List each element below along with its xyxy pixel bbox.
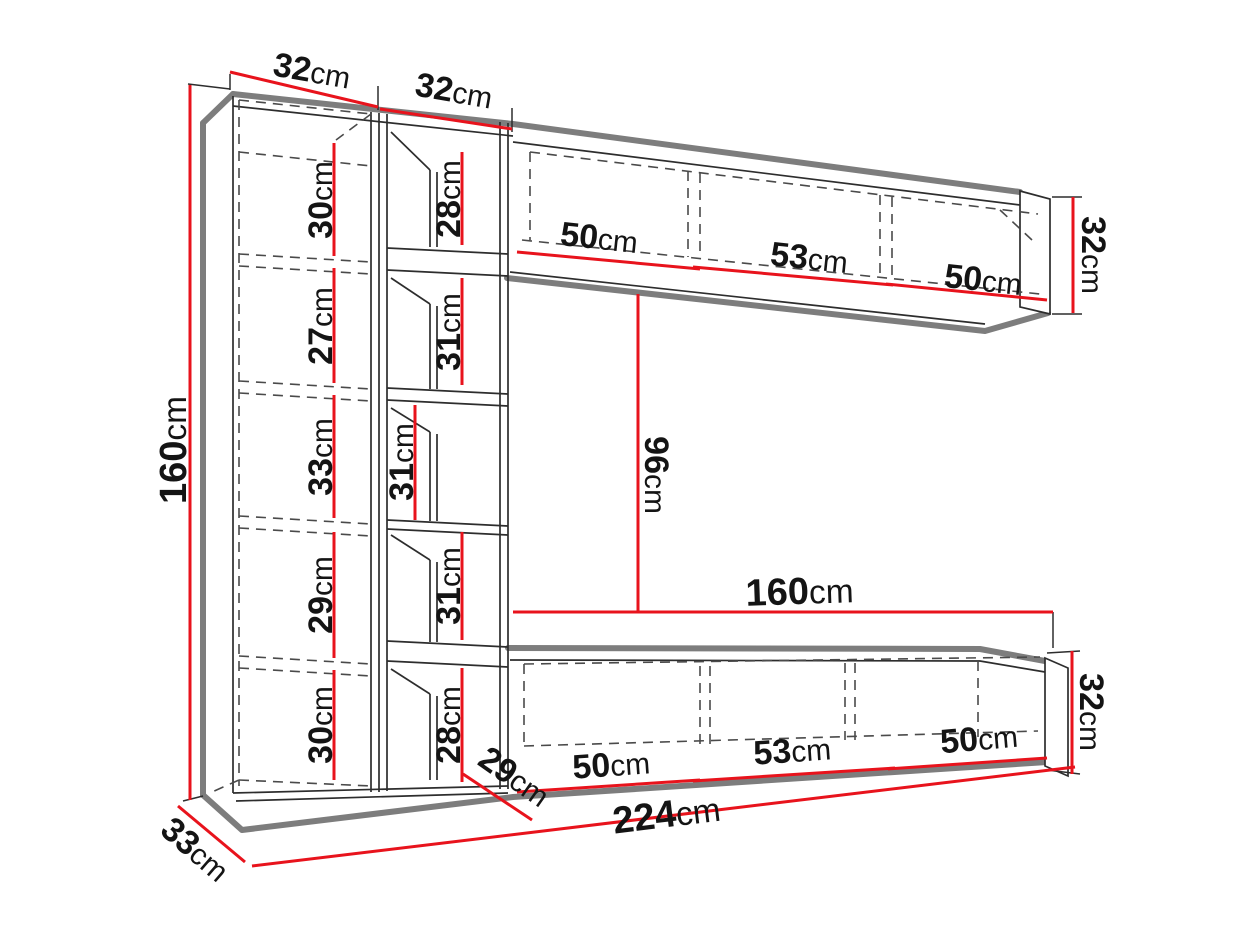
dim-label-tv-w3: 50cm (939, 717, 1020, 762)
dim-label-tv-w1: 50cm (571, 743, 651, 786)
furniture-dimension-diagram: 32cm 32cm 160cm 30cm 27cm 33cm 29cm 30cm… (0, 0, 1240, 930)
dim-label-col-inner-s2: 31cm (430, 293, 468, 371)
diagram-canvas: 32cm 32cm 160cm 30cm 27cm 33cm 29cm 30cm… (0, 0, 1240, 930)
dim-label-col-left-s5: 30cm (302, 686, 340, 764)
dim-label-top-cabinet-w3: 50cm (943, 257, 1024, 303)
dim-label-col-left-s1: 30cm (302, 161, 340, 239)
dim-label-top-cabinet-w1: 50cm (559, 215, 640, 261)
dim-label-col-left-s3: 33cm (302, 418, 340, 496)
tv-stand-right-panel (1045, 658, 1068, 776)
dim-label-top-cabinet-height: 32cm (1074, 216, 1112, 294)
dim-label-tv-w2: 53cm (752, 729, 832, 772)
dim-label-col-left-s4: 29cm (302, 556, 340, 634)
dim-label-col-left-width: 32cm (270, 46, 353, 97)
dim-label-total-width: 224cm (610, 788, 722, 843)
dim-label-tv-length: 160cm (745, 569, 854, 615)
dim-label-top-cabinet-w2: 53cm (769, 235, 850, 281)
dim-label-col-left-s2: 27cm (302, 287, 340, 365)
dim-label-col-inner-s1: 28cm (430, 160, 468, 238)
dim-label-col-inner-s4: 31cm (430, 547, 468, 625)
dim-label-niche-height: 96cm (637, 436, 675, 514)
dim-label-col-inner-width: 32cm (412, 66, 495, 117)
dim-label-col-inner-s5: 28cm (430, 686, 468, 764)
dim-label-col-inner-s3: 31cm (383, 423, 421, 501)
dim-label-total-height: 160cm (153, 396, 195, 504)
top-cabinet-right-panel (1020, 191, 1050, 314)
dim-label-tv-height: 32cm (1072, 673, 1110, 751)
